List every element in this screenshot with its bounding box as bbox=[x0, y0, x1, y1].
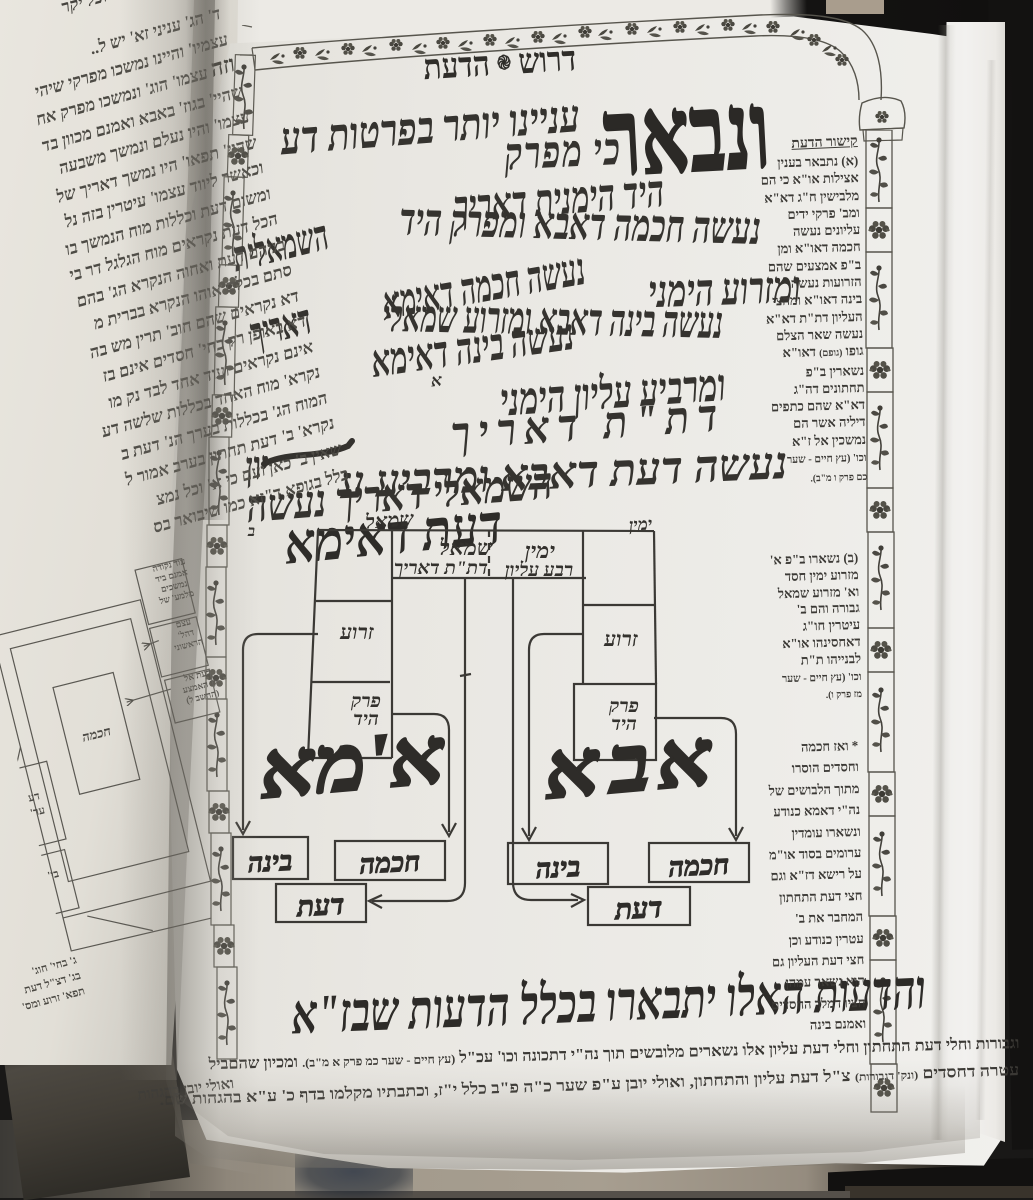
svg-text:דע: דע bbox=[27, 790, 41, 804]
svg-text:חכמה: חכמה bbox=[359, 846, 421, 879]
svg-text:בינה: בינה bbox=[535, 852, 581, 884]
svg-text:חכמה: חכמה bbox=[81, 723, 113, 745]
svg-text:רבע עליון: רבע עליון bbox=[505, 560, 573, 581]
svg-text:בי': בי' bbox=[46, 868, 60, 882]
svg-text:זרוע: זרוע bbox=[339, 620, 374, 644]
svg-text:זרוע: זרוע bbox=[603, 627, 638, 651]
svg-text:דעת: דעת bbox=[612, 893, 663, 927]
svg-text:ער': ער' bbox=[29, 804, 46, 819]
svg-text:שמאל: שמאל bbox=[439, 535, 493, 560]
svg-text:דת"ת דאריך: דת"ת דאריך bbox=[394, 558, 488, 579]
svg-text:אבא: אבא bbox=[540, 712, 724, 815]
svg-text:שמאל: שמאל bbox=[365, 508, 415, 533]
svg-text:ימין: ימין bbox=[628, 514, 653, 535]
svg-text:חכמה: חכמה bbox=[668, 849, 730, 882]
svg-text:א'מא: א'מא bbox=[255, 711, 449, 815]
